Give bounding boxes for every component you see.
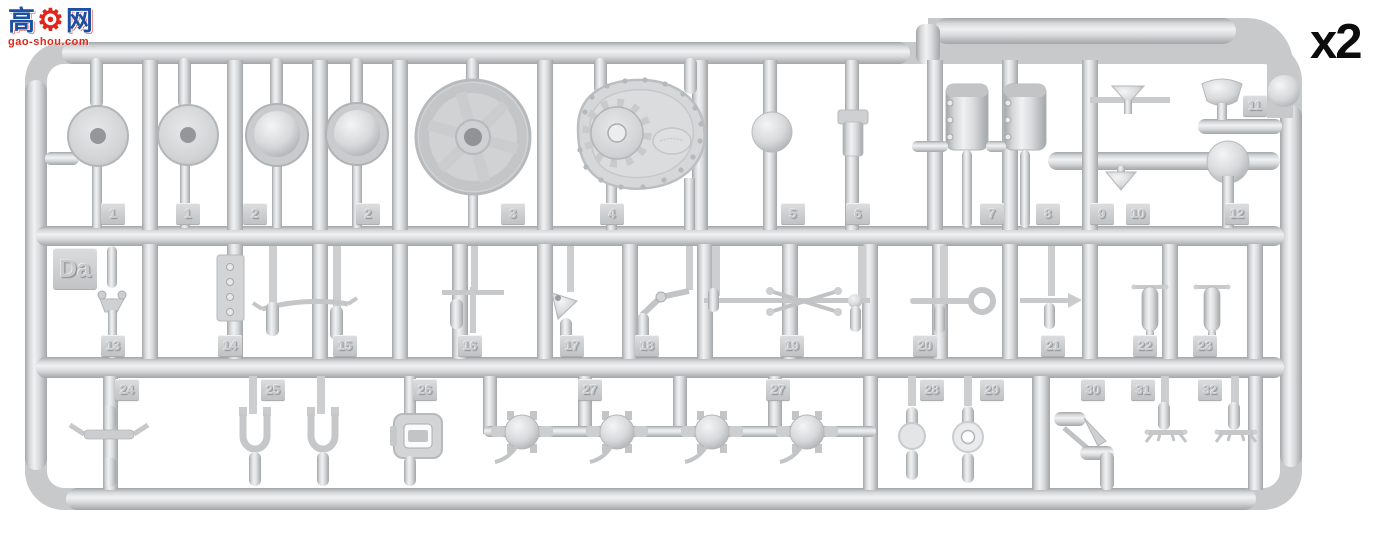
part-number-tag: 26	[413, 379, 437, 401]
lever-part-21	[1020, 246, 1082, 329]
part-number-tag: 2	[243, 203, 267, 225]
part-number-tag: 31	[1131, 379, 1155, 401]
bracket-part-17	[552, 246, 577, 346]
part-number-tag: 23	[1193, 335, 1217, 357]
drive-housing-part-4	[577, 77, 704, 189]
part-number-tag: 12	[1225, 203, 1249, 225]
part-number-tag: 27	[766, 379, 790, 401]
quantity-label: x2	[1310, 14, 1361, 70]
part-number-tag: 15	[333, 335, 357, 357]
cup-part-11	[1202, 79, 1242, 120]
cylinder-part-6	[838, 110, 868, 156]
part-number-tag: 2	[356, 203, 380, 225]
watermark-domain-text: gao-shou.com	[8, 37, 118, 48]
part-number-tag: 16	[458, 335, 482, 357]
shackle-part-26a	[307, 376, 339, 486]
part-number-tag: 6	[846, 203, 870, 225]
part-number-tag: 8	[1036, 203, 1060, 225]
logo-gear-icon: ⚙	[37, 6, 64, 36]
idler-wheel-part-2a	[246, 104, 308, 166]
corner-ball-part	[1268, 75, 1300, 107]
valve-part-9	[1090, 86, 1170, 114]
part-number-tag: 14	[218, 335, 242, 357]
part-number-tag: 24	[115, 379, 139, 401]
part-number-tag: 17	[560, 335, 584, 357]
part-number-tag: 29	[980, 379, 1004, 401]
idler-wheel-part-2b	[326, 103, 388, 165]
t-rod-part-16	[442, 246, 504, 333]
ring-part-29	[953, 376, 983, 483]
part-number-tag: 13	[101, 335, 125, 357]
part-number-tag: 19	[780, 335, 804, 357]
part-number-tag: 1	[101, 203, 125, 225]
part-number-tag: 10	[1126, 203, 1150, 225]
part-number-tag: 21	[1041, 335, 1065, 357]
sprue-photo: 1 1 2 2 3 4 5 6 7 8 9 10 12 11 13 14 15 …	[0, 0, 1380, 533]
part-number-tag: 20	[913, 335, 937, 357]
part-number-tag: 1	[176, 203, 200, 225]
sprue-code-label: Da	[53, 248, 97, 290]
part-number-tag: 28	[920, 379, 944, 401]
logo-char-left: 高	[8, 8, 35, 35]
part-number-tag: 22	[1133, 335, 1157, 357]
part-number-tag: 4	[600, 203, 624, 225]
riveted-plate-part-14	[217, 255, 244, 321]
part-number-tag: 3	[501, 203, 525, 225]
part-number-tag: 9	[1090, 203, 1114, 225]
part-number-tag: 27	[578, 379, 602, 401]
tow-eye-part-20	[910, 246, 993, 333]
part-number-tag: 30	[1081, 379, 1105, 401]
dome-wheel-part-5	[752, 112, 792, 152]
lever-part-18	[637, 246, 693, 341]
part-number-tag: 32	[1198, 379, 1222, 401]
part-number-tag: 18	[635, 335, 659, 357]
part-number-tag: 7	[980, 203, 1004, 225]
logo-char-right: 网	[66, 8, 93, 35]
pedal-part-30	[1054, 412, 1114, 490]
part-number-tag: 25	[261, 379, 285, 401]
sprue-graphic	[0, 0, 1380, 533]
canister-part-7	[912, 84, 988, 228]
road-wheel-part-1b	[158, 105, 218, 165]
blade-rod-part-15	[253, 246, 357, 340]
watermark-logo-row: 高 ⚙ 网	[8, 6, 118, 36]
watermark-logo: 高 ⚙ 网 gao-shou.com	[8, 6, 118, 48]
road-wheel-part-1a	[68, 106, 128, 166]
part-number-tag: 11	[1243, 95, 1267, 117]
part-number-tag: 5	[781, 203, 805, 225]
spoked-wheel-part-3	[416, 80, 530, 194]
